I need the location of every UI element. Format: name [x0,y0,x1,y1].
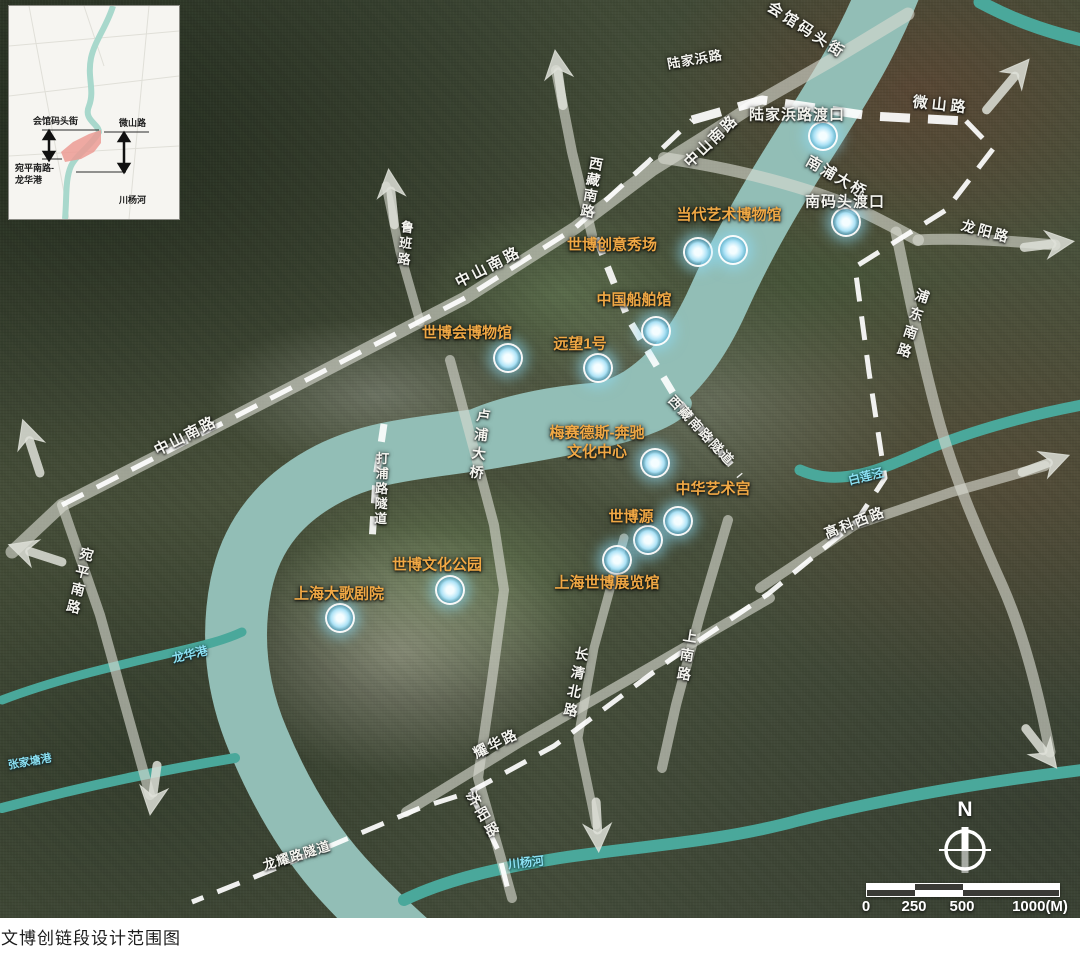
scalebar-tick: 0 [862,898,870,915]
poi-marker [683,237,713,267]
scalebar-segment [867,884,915,896]
poi-marker [633,525,663,555]
poi-marker [831,207,861,237]
inset-label-weishanlu: 微山路 [119,118,146,130]
poi-marker [641,316,671,346]
inset-map: 会馆码头街 微山路 宛平南路- 龙华港 川杨河 [8,5,180,220]
compass: N [925,798,1005,890]
inset-graphics [9,6,179,219]
poi-marker [435,575,465,605]
poi-marker [640,448,670,478]
scalebar-segment [963,884,1059,896]
poi-marker [718,235,748,265]
inset-label-huiguanmatou: 会馆码头街 [33,116,78,128]
scalebar-tick: 250 [901,898,926,915]
poi-marker [493,343,523,373]
map-canvas[interactable]: 会馆码头街陆家浜路微山路中山南路南浦大桥西藏南路鲁班路中山南路龙阳路浦东南路打浦… [0,0,1080,918]
caption-bar: 文博创链段设计范围图 [0,918,1080,955]
scalebar-bar [866,883,1060,897]
inset-label-chuanyanghe: 川杨河 [119,195,146,207]
map-figure: 会馆码头街陆家浜路微山路中山南路南浦大桥西藏南路鲁班路中山南路龙阳路浦东南路打浦… [0,0,1080,955]
caption-text: 文博创链段设计范围图 [1,924,181,949]
scalebar-tick: 500 [949,898,974,915]
north-label: N [925,798,1005,822]
scalebar-segment [915,884,963,896]
inset-label-wanping-longhua: 宛平南路- 龙华港 [15,163,54,186]
poi-marker [808,121,838,151]
inset-highlight-area [61,130,101,162]
scalebar: 02505001000(M) [862,880,1072,916]
poi-marker [325,603,355,633]
scalebar-tick: 1000(M) [1012,898,1068,915]
poi-marker [583,353,613,383]
poi-marker [602,545,632,575]
poi-marker [663,506,693,536]
